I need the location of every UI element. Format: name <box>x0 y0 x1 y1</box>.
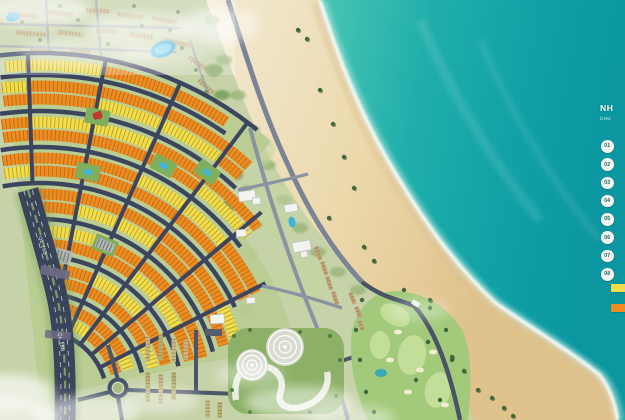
map-legend: NH CHÚ 01 02 03 04 05 06 07 08 <box>600 103 625 121</box>
sand-bunker <box>416 368 424 373</box>
sand-bunker <box>404 390 412 395</box>
cloud-haze <box>190 7 260 43</box>
masterplan-screenshot: QL 18B QL 18B NH CHÚ 01 02 03 04 05 06 0… <box>0 0 625 420</box>
water-hazard <box>375 369 387 377</box>
legend-item-circle: 04 <box>601 195 614 208</box>
cloud-haze <box>390 300 450 320</box>
dark-building <box>205 329 222 337</box>
resort-building <box>284 203 298 213</box>
resort-building <box>252 197 261 205</box>
legend-item-number: 02 <box>604 162 610 168</box>
legend-swatch-orange <box>611 304 625 312</box>
legend-items: 01 02 03 04 05 06 07 08 <box>601 140 614 281</box>
legend-subtitle: CHÚ <box>600 116 625 121</box>
legend-item-circle: 07 <box>601 250 614 263</box>
legend-item-circle: 01 <box>601 140 614 153</box>
cloud-haze <box>215 363 285 387</box>
sand-bunker <box>394 330 402 335</box>
legend-item-number: 06 <box>604 235 610 241</box>
legend-item-circle: 03 <box>601 177 614 190</box>
house-row <box>184 340 189 360</box>
house-row <box>218 402 223 418</box>
legend-item-circle: 02 <box>601 158 614 171</box>
legend-swatch-yellow <box>611 284 625 292</box>
house-row <box>206 400 211 418</box>
sand-bunker <box>441 403 449 408</box>
master-plan-map: QL 18B QL 18B <box>0 0 625 420</box>
resort-building <box>300 251 308 258</box>
house-row <box>172 338 177 362</box>
resort-building <box>236 229 247 237</box>
sand-bunker <box>429 350 437 355</box>
sand-bunker <box>386 358 394 363</box>
legend-item-number: 01 <box>604 143 610 149</box>
legend-title: NH <box>600 103 625 113</box>
legend-item-number: 03 <box>604 180 610 186</box>
house-row <box>146 336 151 362</box>
cloud-haze <box>120 386 200 414</box>
legend-item-number: 05 <box>604 216 610 222</box>
house-row <box>159 334 164 360</box>
legend-item-circle: 05 <box>601 213 614 226</box>
legend-item-circle: 06 <box>601 231 614 244</box>
resort-building <box>210 314 225 324</box>
legend-item-number: 07 <box>604 253 610 259</box>
legend-item-number: 04 <box>604 198 610 204</box>
legend-item-circle: 08 <box>601 268 614 281</box>
resort-building <box>246 297 256 304</box>
cloud-haze <box>120 43 200 67</box>
legend-item-number: 08 <box>604 271 610 277</box>
